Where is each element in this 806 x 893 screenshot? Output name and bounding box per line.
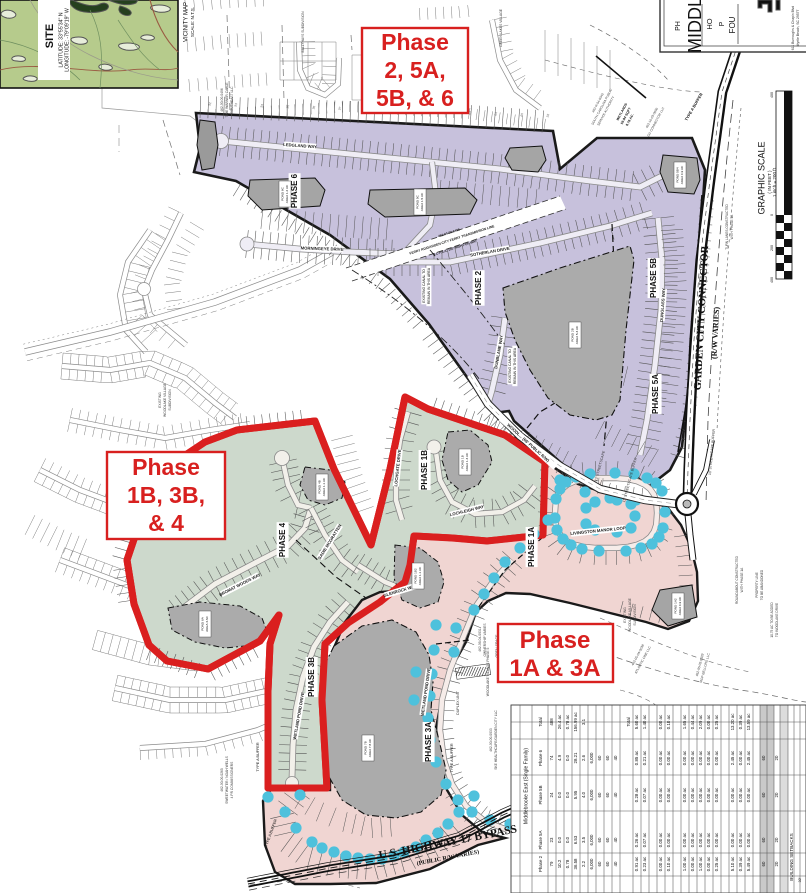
svg-text:2.45 ac: 2.45 ac: [730, 750, 735, 765]
svg-text:0.00 ac: 0.00 ac: [666, 750, 671, 765]
svg-text:PHASE 1B: PHASE 1B: [420, 450, 429, 490]
svg-text:0.39 ac: 0.39 ac: [738, 856, 743, 871]
svg-text:10.2: 10.2: [557, 859, 562, 868]
svg-text:SUBDIVISION: SUBDIVISION: [168, 389, 172, 411]
svg-text:5.10 ac: 5.10 ac: [730, 856, 735, 871]
svg-text:GREEN LAKES VILLAGE: GREEN LAKES VILLAGE: [499, 8, 503, 47]
svg-text:0.00 ac: 0.00 ac: [658, 750, 663, 765]
svg-text:0.21 ac: 0.21 ac: [642, 750, 647, 765]
svg-text:0.00 ac: 0.00 ac: [690, 856, 695, 871]
svg-text:74: 74: [549, 755, 554, 760]
svg-text:0.00 ac: 0.00 ac: [706, 787, 711, 802]
svg-text:23: 23: [549, 837, 554, 842]
svg-text:0.26 ac: 0.26 ac: [634, 832, 639, 847]
svg-text:5.60 ac: 5.60 ac: [634, 714, 639, 729]
svg-text:60: 60: [597, 755, 602, 760]
svg-text:PH: PH: [675, 21, 682, 31]
svg-text:AREA 3 AC: AREA 3 AC: [205, 615, 209, 632]
svg-text:TYPE A BUFFER: TYPE A BUFFER: [256, 742, 260, 772]
svg-text:ROUNDABOUT CONSTRUCTED: ROUNDABOUT CONSTRUCTED: [735, 555, 739, 604]
svg-text:TO BE ABANDONED: TO BE ABANDONED: [760, 569, 764, 600]
svg-text:13.20 ac: 13.20 ac: [730, 713, 735, 731]
svg-text:TIME WARNER CABLE: TIME WARNER CABLE: [225, 82, 229, 118]
svg-text:156.99 ac: 156.99 ac: [573, 712, 578, 732]
svg-text:Phase: Phase: [520, 627, 591, 654]
svg-text:0.00 ac: 0.00 ac: [690, 750, 695, 765]
svg-text:EXISTING CANAL TO: EXISTING CANAL TO: [508, 349, 512, 383]
svg-text:2.6: 2.6: [581, 754, 586, 761]
svg-text:AREA 0.9 AC: AREA 0.9 AC: [678, 596, 682, 615]
svg-text:0.00 ac: 0.00 ac: [698, 832, 703, 847]
svg-text:0.00 ac: 0.00 ac: [714, 832, 719, 847]
svg-text:LONGITUDE: -79°09'19" W: LONGITUDE: -79°09'19" W: [64, 8, 70, 72]
svg-text:TURN LANES CONSTRUCTED: TURN LANES CONSTRUCTED: [725, 204, 729, 250]
svg-text:0.25 ac: 0.25 ac: [714, 856, 719, 871]
svg-text:40: 40: [613, 837, 618, 842]
svg-text:0.10 ac: 0.10 ac: [666, 714, 671, 729]
svg-text:Phase 5B: Phase 5B: [538, 785, 543, 804]
svg-text:0.0: 0.0: [557, 791, 562, 798]
svg-text:60: 60: [605, 755, 610, 760]
svg-text:HO: HO: [705, 18, 714, 29]
svg-text:PHASE 4: PHASE 4: [278, 522, 287, 557]
svg-text:1B, 3B,: 1B, 3B,: [127, 482, 205, 508]
svg-text:0.39 ac: 0.39 ac: [738, 714, 743, 729]
svg-text:TO WOODLAKE DRIVE: TO WOODLAKE DRIVE: [775, 603, 779, 637]
svg-text:6,000: 6,000: [589, 752, 594, 764]
svg-text:0.00 ac: 0.00 ac: [714, 787, 719, 802]
svg-text:488: 488: [549, 718, 554, 726]
svg-text:REMAIN IN THIS AREA: REMAIN IN THIS AREA: [427, 267, 431, 304]
svg-text:20: 20: [774, 861, 779, 866]
svg-text:0.00 ac: 0.00 ac: [706, 856, 711, 871]
svg-text:PHASE 3B: PHASE 3B: [307, 657, 316, 697]
svg-text:2, 5A,: 2, 5A,: [384, 57, 445, 83]
svg-text:0.00 ac: 0.00 ac: [746, 832, 751, 847]
svg-text:1 inch = 200 ft.: 1 inch = 200 ft.: [772, 167, 777, 197]
svg-text:0.00 ac: 0.00 ac: [682, 832, 687, 847]
svg-text:4.9: 4.9: [557, 754, 562, 761]
svg-text:0.44 ac: 0.44 ac: [690, 714, 695, 729]
svg-text:Phase 2: Phase 2: [538, 855, 543, 872]
svg-text:AREA 1.1 AC: AREA 1.1 AC: [418, 566, 422, 585]
svg-text:60: 60: [597, 792, 602, 797]
svg-text:0.0: 0.0: [557, 836, 562, 843]
svg-text:FOU: FOU: [728, 16, 737, 33]
svg-text:0.23 ac: 0.23 ac: [642, 856, 647, 871]
svg-text:462-00-00-0496: 462-00-00-0496: [220, 88, 224, 112]
svg-text:PHASE 5B: PHASE 5B: [649, 258, 658, 298]
svg-text:2.45 ac: 2.45 ac: [746, 750, 751, 765]
svg-text:0.00 ac: 0.00 ac: [658, 714, 663, 729]
svg-text:0.00 ac: 0.00 ac: [658, 787, 663, 802]
svg-text:40: 40: [613, 861, 618, 866]
svg-text:60: 60: [597, 837, 602, 842]
svg-text:PROPERTY LINE: PROPERTY LINE: [755, 572, 759, 597]
svg-text:0.07 ac: 0.07 ac: [642, 832, 647, 847]
svg-text:60: 60: [597, 861, 602, 866]
svg-text:1.00 ac: 1.00 ac: [698, 856, 703, 871]
svg-text:60: 60: [605, 792, 610, 797]
svg-text:WOODLAKE VILLAGE: WOODLAKE VILLAGE: [628, 597, 632, 632]
svg-text:PHASE 6: PHASE 6: [290, 173, 299, 208]
svg-text:OWNERSHIP VARIES: OWNERSHIP VARIES: [483, 623, 487, 657]
svg-text:0.07 ac: 0.07 ac: [642, 787, 647, 802]
svg-text:1.40 ac: 1.40 ac: [642, 714, 647, 729]
svg-text:4.0: 4.0: [581, 791, 586, 798]
svg-text:& 4: & 4: [148, 510, 184, 536]
svg-text:BUILDING SETBACKS: BUILDING SETBACKS: [789, 833, 794, 880]
svg-text:BALLYHAYS SUBDIVISION: BALLYHAYS SUBDIVISION: [301, 11, 305, 53]
svg-text:SUBDIVISION: SUBDIVISION: [633, 604, 637, 626]
svg-text:60: 60: [761, 755, 766, 760]
svg-text:0.78 ac: 0.78 ac: [565, 714, 570, 729]
svg-text:0.91 ac: 0.91 ac: [634, 856, 639, 871]
svg-text:Phase 5A: Phase 5A: [538, 830, 543, 849]
svg-text:PHASE 5A: PHASE 5A: [651, 374, 660, 414]
svg-text:6,000: 6,000: [589, 834, 594, 846]
svg-text:0.00 ac: 0.00 ac: [706, 750, 711, 765]
svg-text:PHASE 1A: PHASE 1A: [527, 527, 536, 567]
svg-text:GRAPHIC SCALE: GRAPHIC SCALE: [756, 141, 766, 214]
svg-text:6.53: 6.53: [573, 835, 578, 844]
svg-text:Phase: Phase: [132, 454, 200, 480]
svg-text:SWEETWATER / NOAH WELLS: SWEETWATER / NOAH WELLS: [225, 755, 229, 803]
svg-text:3.1: 3.1: [581, 718, 586, 725]
svg-text:2.09 ac: 2.09 ac: [698, 714, 703, 729]
svg-text:40: 40: [613, 755, 618, 760]
svg-text:5B, & 6: 5B, & 6: [376, 85, 454, 111]
svg-text:4 PR COMMISSIONERS: 4 PR COMMISSIONERS: [230, 761, 234, 798]
svg-text:0.10 ac: 0.10 ac: [666, 856, 671, 871]
svg-text:0.00 ac: 0.00 ac: [706, 832, 711, 847]
svg-text:20: 20: [774, 792, 779, 797]
svg-text:AREA 1.1 AC: AREA 1.1 AC: [322, 477, 326, 496]
svg-text:SITE: SITE: [44, 24, 56, 48]
svg-text:AREA 5.3 AC: AREA 5.3 AC: [575, 325, 579, 344]
svg-text:Phase 6: Phase 6: [538, 749, 543, 766]
svg-text:40: 40: [613, 792, 618, 797]
svg-text:13.59 ac: 13.59 ac: [746, 713, 751, 731]
svg-text:462-00-00-0033: 462-00-00-0033: [489, 728, 493, 752]
svg-text:1.65 ac: 1.65 ac: [682, 714, 687, 729]
svg-text:Phase: Phase: [381, 29, 449, 55]
svg-text:0.00 ac: 0.00 ac: [690, 832, 695, 847]
svg-text:SOUTHEAST LLC: SOUTHEAST LLC: [230, 86, 234, 114]
svg-text:400: 400: [770, 92, 774, 98]
svg-text:1A & 3A: 1A & 3A: [509, 655, 600, 682]
svg-text:AREA 1.3 AC: AREA 1.3 AC: [465, 452, 469, 471]
svg-text:60: 60: [761, 792, 766, 797]
svg-text:0.0: 0.0: [565, 836, 570, 843]
svg-text:462-09-04-0031: 462-09-04-0031: [478, 628, 482, 652]
svg-text:0.00 ac: 0.00 ac: [730, 787, 735, 802]
svg-text:0.00 ac: 0.00 ac: [698, 787, 703, 802]
svg-text:0.00 ac: 0.00 ac: [706, 714, 711, 729]
svg-text:0.00 ac: 0.00 ac: [698, 750, 703, 765]
svg-text:PHASE 2: PHASE 2: [474, 270, 483, 305]
svg-text:28.21: 28.21: [573, 752, 578, 764]
svg-text:0.00 ac: 0.00 ac: [738, 750, 743, 765]
svg-text:AREA 1.2 AC: AREA 1.2 AC: [285, 184, 289, 203]
svg-text:0.78: 0.78: [565, 859, 570, 868]
svg-text:0.28 ac: 0.28 ac: [634, 787, 639, 802]
svg-text:AREA 1.5 AC: AREA 1.5 AC: [420, 192, 424, 211]
svg-text:0.25 ac: 0.25 ac: [714, 714, 719, 729]
svg-text:60: 60: [761, 861, 766, 866]
svg-text:Middlebrooke East (Single Fami: Middlebrooke East (Single Family): [523, 748, 529, 824]
svg-text:0.00 ac: 0.00 ac: [738, 787, 743, 802]
svg-text:WOODLAKE VILLAGE: WOODLAKE VILLAGE: [163, 382, 167, 417]
svg-text:SKE HEALTHCAPE/GARDEN CITY LLC: SKE HEALTHCAPE/GARDEN CITY LLC: [494, 710, 498, 770]
svg-text:6,000: 6,000: [589, 789, 594, 801]
svg-text:0.00 ac: 0.00 ac: [682, 750, 687, 765]
svg-text:26.4 ac: 26.4 ac: [557, 714, 562, 729]
svg-text:Total: Total: [626, 717, 631, 726]
svg-text:30': 30': [798, 877, 802, 882]
svg-text:6,000: 6,000: [589, 858, 594, 870]
svg-text:5.49 ac: 5.49 ac: [746, 856, 751, 871]
svg-text:Myrtle Beach, SC 29577: Myrtle Beach, SC 29577: [796, 10, 800, 47]
svg-text:AREA 0.9 AC: AREA 0.9 AC: [680, 165, 684, 184]
svg-text:611 Burroughs & Chapin Blvd: 611 Burroughs & Chapin Blvd: [791, 6, 795, 51]
svg-text:VICINITY MAP: VICINITY MAP: [184, 2, 190, 42]
svg-text:0.0: 0.0: [565, 754, 570, 761]
svg-text:DUPLEX UNIT: DUPLEX UNIT: [456, 690, 460, 715]
svg-text:60: 60: [605, 861, 610, 866]
svg-text:0.0: 0.0: [565, 791, 570, 798]
svg-text:0.85 ac: 0.85 ac: [634, 750, 639, 765]
svg-text:60: 60: [761, 837, 766, 842]
svg-text:AREA 7.8 AC: AREA 7.8 AC: [368, 738, 372, 757]
svg-text:36.58: 36.58: [573, 858, 578, 870]
svg-text:0.00 ac: 0.00 ac: [690, 787, 695, 802]
svg-text:EXISTING: EXISTING: [158, 392, 162, 408]
svg-text:WITH PHASE 1A: WITH PHASE 1A: [740, 567, 744, 592]
svg-text:0: 0: [770, 214, 774, 216]
svg-text:P: P: [719, 21, 726, 26]
svg-text:200: 200: [770, 245, 774, 251]
svg-text:EXISTING CANAL TO: EXISTING CANAL TO: [422, 269, 426, 303]
svg-text:0.00 ac: 0.00 ac: [682, 787, 687, 802]
svg-text:EXISTING: EXISTING: [623, 607, 627, 623]
svg-text:20: 20: [774, 755, 779, 760]
svg-text:400: 400: [770, 277, 774, 283]
svg-text:79: 79: [549, 861, 554, 866]
svg-text:10.75 AC TO BE ADDED: 10.75 AC TO BE ADDED: [770, 602, 774, 638]
svg-text:60: 60: [605, 837, 610, 842]
svg-text:24: 24: [549, 792, 554, 797]
svg-text:5.95: 5.95: [573, 790, 578, 799]
svg-text:PHASE 3A: PHASE 3A: [424, 722, 433, 762]
svg-text:TYPE A BUFFER: TYPE A BUFFER: [450, 743, 454, 773]
svg-text:0.00 ac: 0.00 ac: [666, 832, 671, 847]
svg-text:20: 20: [774, 837, 779, 842]
svg-text:0.00 ac: 0.00 ac: [666, 787, 671, 802]
svg-text:WITH PHASE 1A: WITH PHASE 1A: [730, 214, 734, 239]
svg-text:1.00 ac: 1.00 ac: [682, 856, 687, 871]
svg-text:Total: Total: [538, 717, 543, 726]
svg-text:3.5: 3.5: [581, 836, 586, 843]
svg-text:0.00 ac: 0.00 ac: [714, 750, 719, 765]
svg-text:2.2: 2.2: [581, 860, 586, 867]
svg-text:0.00 ac: 0.00 ac: [738, 832, 743, 847]
svg-text:REMAIN IN THIS AREA: REMAIN IN THIS AREA: [513, 347, 517, 384]
svg-text:SCALE: N.T.S.: SCALE: N.T.S.: [190, 7, 195, 37]
svg-text:0.00 ac: 0.00 ac: [658, 832, 663, 847]
svg-text:0.00 ac: 0.00 ac: [746, 787, 751, 802]
svg-text:0.00 ac: 0.00 ac: [730, 832, 735, 847]
svg-text:0.00 ac: 0.00 ac: [658, 856, 663, 871]
svg-text:462-00-00-0265: 462-00-00-0265: [220, 768, 224, 792]
